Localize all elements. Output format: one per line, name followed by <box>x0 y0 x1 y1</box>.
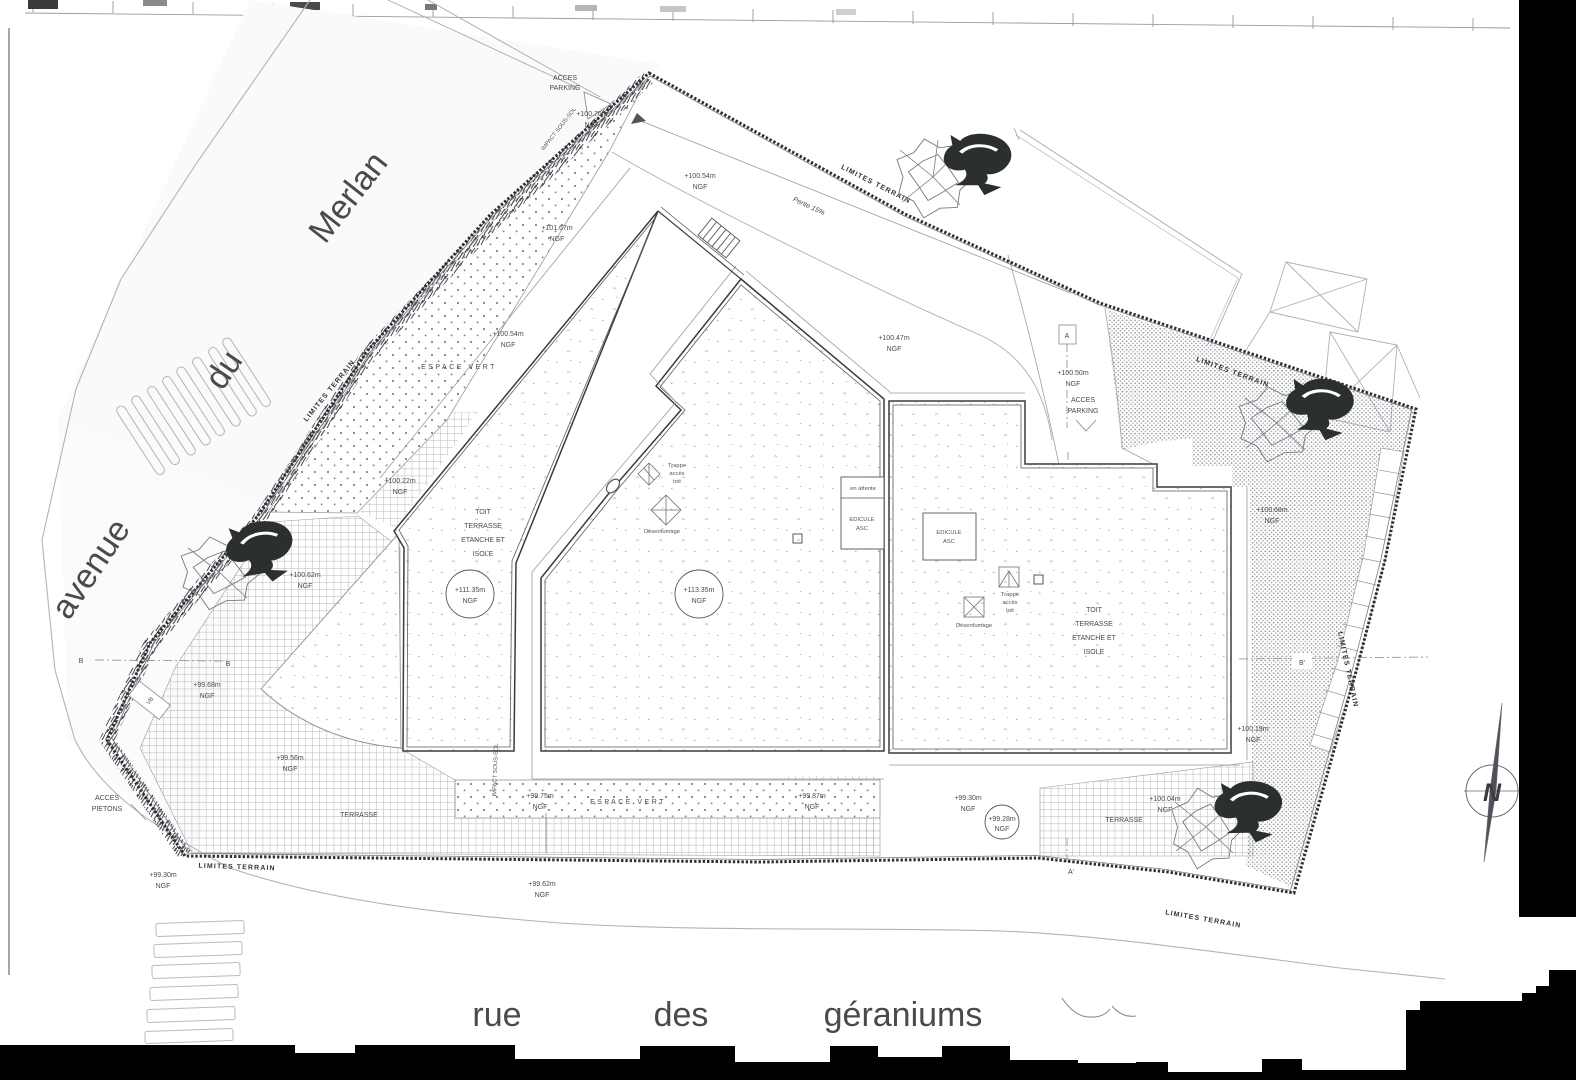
svg-text:NGF: NGF <box>393 489 408 496</box>
svg-text:+99.30m: +99.30m <box>954 795 982 802</box>
svg-text:+99.68m: +99.68m <box>193 682 221 689</box>
svg-text:NGF: NGF <box>961 806 976 813</box>
svg-text:+111.35m: +111.35m <box>455 587 485 594</box>
svg-text:+99.30m: +99.30m <box>149 872 177 879</box>
svg-text:TOIT: TOIT <box>475 509 492 516</box>
svg-text:PARKING: PARKING <box>550 85 581 92</box>
svg-text:accès: accès <box>669 471 684 477</box>
svg-text:EDICULE: EDICULE <box>936 530 961 536</box>
svg-text:NGF: NGF <box>1246 737 1261 744</box>
svg-text:EDICULE: EDICULE <box>849 517 874 523</box>
svg-text:+100.54m: +100.54m <box>492 331 523 338</box>
svg-text:+100.76m: +100.76m <box>576 111 607 118</box>
svg-text:NGF: NGF <box>533 804 548 811</box>
svg-text:NGF: NGF <box>535 892 550 899</box>
svg-text:ACCES: ACCES <box>553 75 577 82</box>
svg-text:TERRASSE: TERRASSE <box>1105 817 1143 824</box>
svg-text:+99.28m: +99.28m <box>988 816 1016 823</box>
svg-text:Désenfumage: Désenfumage <box>644 529 680 535</box>
svg-text:B: B <box>226 661 231 668</box>
svg-text:géraniums: géraniums <box>824 996 983 1034</box>
svg-text:N: N <box>1483 779 1502 807</box>
svg-text:ASC: ASC <box>943 539 955 545</box>
svg-text:A': A' <box>1068 869 1074 876</box>
svg-text:NGF: NGF <box>1158 807 1173 814</box>
svg-text:NGF: NGF <box>200 693 215 700</box>
svg-text:+100.47m: +100.47m <box>878 335 909 342</box>
svg-text:PIETONS: PIETONS <box>92 806 123 813</box>
svg-text:ESPACE VERT: ESPACE VERT <box>590 799 666 806</box>
svg-text:ETANCHE ET: ETANCHE ET <box>1072 635 1117 642</box>
svg-text:des: des <box>654 996 709 1034</box>
svg-text:A: A <box>1065 333 1070 340</box>
svg-text:+100.19m: +100.19m <box>1237 726 1268 733</box>
svg-text:TERRASSE: TERRASSE <box>340 812 378 819</box>
svg-text:toit: toit <box>673 479 681 485</box>
svg-text:toit: toit <box>1006 608 1014 614</box>
svg-text:ESPACE VERT: ESPACE VERT <box>421 364 497 371</box>
svg-text:+100.62m: +100.62m <box>289 572 320 579</box>
svg-text:Trappe: Trappe <box>668 463 686 469</box>
svg-text:+100.54m: +100.54m <box>684 173 715 180</box>
svg-text:accès: accès <box>1002 600 1017 606</box>
svg-text:+100.04m: +100.04m <box>1149 796 1180 803</box>
svg-text:NGF: NGF <box>463 598 478 605</box>
svg-text:NGF: NGF <box>550 236 565 243</box>
svg-text:+99.62m: +99.62m <box>528 881 556 888</box>
svg-text:PARKING: PARKING <box>1068 408 1099 415</box>
svg-text:+101.67m: +101.67m <box>541 225 572 232</box>
svg-text:+100.22m: +100.22m <box>384 478 415 485</box>
svg-text:NGF: NGF <box>501 342 516 349</box>
svg-text:+99.87m: +99.87m <box>798 793 826 800</box>
svg-text:NGF: NGF <box>298 583 313 590</box>
svg-text:NGF: NGF <box>805 804 820 811</box>
svg-text:+100.50m: +100.50m <box>1057 370 1088 377</box>
svg-text:NGF: NGF <box>995 826 1010 833</box>
svg-text:Désenfumage: Désenfumage <box>956 623 992 629</box>
svg-text:ASC: ASC <box>856 526 868 532</box>
svg-text:NGF: NGF <box>887 346 902 353</box>
svg-text:+100.68m: +100.68m <box>1256 507 1287 514</box>
svg-text:NGF: NGF <box>692 598 707 605</box>
svg-text:Trappe: Trappe <box>1001 592 1019 598</box>
svg-text:en attente: en attente <box>850 486 876 492</box>
svg-text:NGF: NGF <box>1066 381 1081 388</box>
svg-text:+99.75m: +99.75m <box>526 793 554 800</box>
svg-text:ETANCHE ET: ETANCHE ET <box>461 537 506 544</box>
svg-text:NGF: NGF <box>585 122 600 129</box>
svg-text:TERRASSE: TERRASSE <box>1075 621 1113 628</box>
svg-text:ISOLE: ISOLE <box>1084 649 1105 656</box>
svg-text:NGF: NGF <box>693 184 708 191</box>
svg-text:rue: rue <box>472 996 521 1034</box>
svg-text:NGF: NGF <box>1265 518 1280 525</box>
svg-text:ACCES: ACCES <box>95 795 119 802</box>
svg-text:B: B <box>79 658 84 665</box>
svg-text:NGF: NGF <box>283 766 298 773</box>
svg-text:ACCES: ACCES <box>1071 397 1095 404</box>
svg-text:ISOLE: ISOLE <box>473 551 494 558</box>
svg-text:NGF: NGF <box>156 883 171 890</box>
svg-text:TERRASSE: TERRASSE <box>464 523 502 530</box>
svg-text:B': B' <box>1299 660 1305 667</box>
svg-text:TOIT: TOIT <box>1086 607 1103 614</box>
svg-text:+113.35m: +113.35m <box>684 587 715 594</box>
svg-text:+99.56m: +99.56m <box>276 755 304 762</box>
